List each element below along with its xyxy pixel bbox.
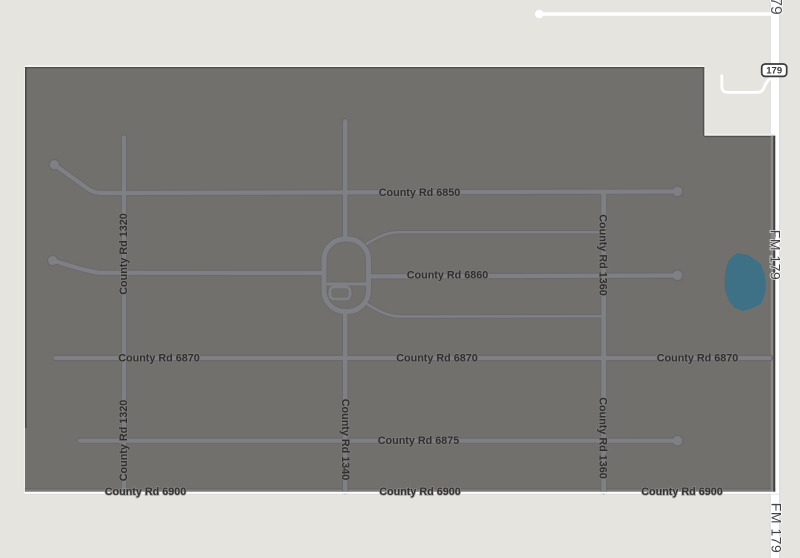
svg-text:County Rd 1340: County Rd 1340 xyxy=(339,399,351,481)
svg-text:County Rd 6850: County Rd 6850 xyxy=(379,187,461,199)
svg-text:County Rd 6870: County Rd 6870 xyxy=(657,352,739,364)
svg-text:FM 179: FM 179 xyxy=(768,230,784,280)
svg-text:County Rd 6870: County Rd 6870 xyxy=(396,352,478,364)
svg-text:County Rd 6860: County Rd 6860 xyxy=(407,269,489,281)
svg-text:County Rd 6875: County Rd 6875 xyxy=(378,435,460,447)
svg-text:County Rd 6900: County Rd 6900 xyxy=(641,486,723,498)
svg-text:FM 179: FM 179 xyxy=(768,503,784,553)
svg-text:County Rd 1320: County Rd 1320 xyxy=(118,400,130,482)
svg-text:County Rd 6870: County Rd 6870 xyxy=(118,352,200,364)
svg-text:County Rd 1320: County Rd 1320 xyxy=(118,213,130,295)
svg-text:County Rd 1360: County Rd 1360 xyxy=(597,214,609,296)
svg-text:County Rd 1360: County Rd 1360 xyxy=(597,397,609,479)
svg-text:179: 179 xyxy=(767,0,784,15)
svg-text:County Rd 6900: County Rd 6900 xyxy=(379,486,461,498)
svg-text:179: 179 xyxy=(766,66,782,77)
svg-text:County Rd 6900: County Rd 6900 xyxy=(105,486,187,498)
